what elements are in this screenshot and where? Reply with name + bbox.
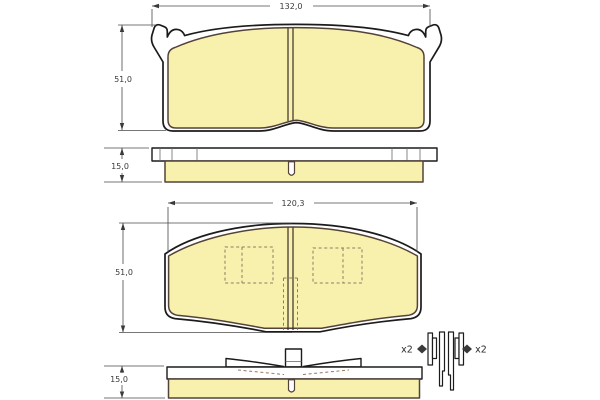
accessory-shim-profile — [440, 332, 445, 386]
pad1-height-value: 51,0 — [114, 75, 132, 84]
pad2-spring-clip-right-arm — [304, 359, 362, 368]
pad1-friction-material — [168, 28, 424, 128]
accessory-clip-profile — [428, 333, 433, 365]
arrowhead-icon — [120, 25, 124, 32]
arrowhead-icon — [121, 326, 125, 333]
pad2-height-value: 51,0 — [115, 268, 133, 277]
arrowhead-icon — [423, 4, 430, 8]
arrowhead-icon — [121, 223, 125, 230]
accessory-quantity-right: x2 — [475, 345, 487, 356]
arrowhead-icon — [120, 123, 124, 130]
pad1-width-dimension: 132,0 — [152, 2, 430, 27]
pad2-side-view — [167, 349, 422, 398]
pad1-side-backing-plate — [152, 148, 437, 161]
arrowhead-icon — [120, 366, 124, 373]
arrowhead-icon — [120, 148, 124, 155]
arrowhead-icon — [152, 4, 159, 8]
accessory-shim-profile — [449, 332, 454, 390]
pad2-front-view — [165, 224, 421, 332]
arrowhead-icon — [410, 201, 417, 205]
arrowhead-icon — [120, 175, 124, 182]
technical-drawing-canvas: 132,0 51,0 15,0 — [0, 0, 600, 400]
pad2-spring-clip-left-arm — [226, 359, 284, 368]
pad2-thickness-value: 15,0 — [110, 375, 128, 384]
pad1-front-view — [152, 24, 442, 131]
arrowhead-icon — [120, 392, 124, 399]
pad2-spring-clip-center-tab — [286, 349, 302, 367]
pad2-side-backing-plate — [167, 367, 422, 379]
pad2-width-value: 120,3 — [282, 199, 305, 208]
pointer-diamond-icon — [417, 345, 427, 354]
accessory-clip-profile — [433, 338, 437, 359]
pad1-thickness-value: 15,0 — [111, 162, 129, 171]
accessory-quantity-left: x2 — [401, 345, 413, 356]
pad1-width-value: 132,0 — [280, 2, 303, 11]
pad2-thickness-dimension: 15,0 — [104, 366, 165, 398]
pad1-side-view — [152, 148, 437, 182]
arrowhead-icon — [168, 201, 175, 205]
pad2-side-groove-notch — [289, 380, 295, 392]
brake-pad-drawing: 132,0 51,0 15,0 — [0, 0, 600, 400]
pad1-side-groove-notch — [289, 162, 295, 175]
